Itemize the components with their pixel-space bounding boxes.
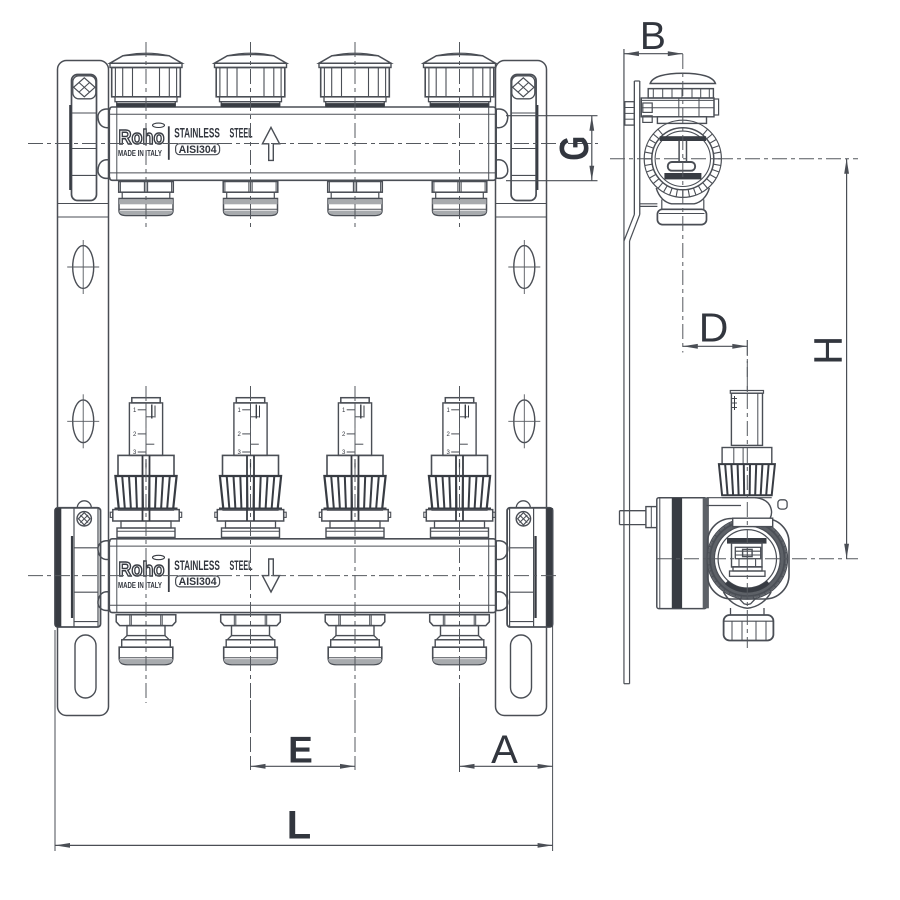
svg-text:STEEL: STEEL — [230, 558, 253, 573]
svg-text:E: E — [288, 730, 313, 771]
svg-text:G: G — [551, 136, 597, 161]
svg-text:STAINLESS: STAINLESS — [174, 558, 220, 573]
svg-text:AISI304: AISI304 — [179, 576, 218, 588]
svg-text:Roho: Roho — [119, 126, 165, 149]
svg-text:L: L — [287, 803, 311, 847]
svg-text:H: H — [806, 336, 850, 365]
svg-text:STAINLESS: STAINLESS — [174, 126, 220, 141]
svg-text:D: D — [699, 305, 729, 351]
svg-text:STEEL: STEEL — [230, 126, 253, 141]
svg-text:MADE IN ITALY: MADE IN ITALY — [118, 581, 162, 590]
svg-text:AISI304: AISI304 — [179, 144, 218, 156]
svg-text:Roho: Roho — [119, 558, 165, 581]
svg-text:MADE IN ITALY: MADE IN ITALY — [118, 149, 162, 158]
svg-text:A: A — [491, 728, 518, 772]
svg-text:B: B — [640, 15, 666, 58]
